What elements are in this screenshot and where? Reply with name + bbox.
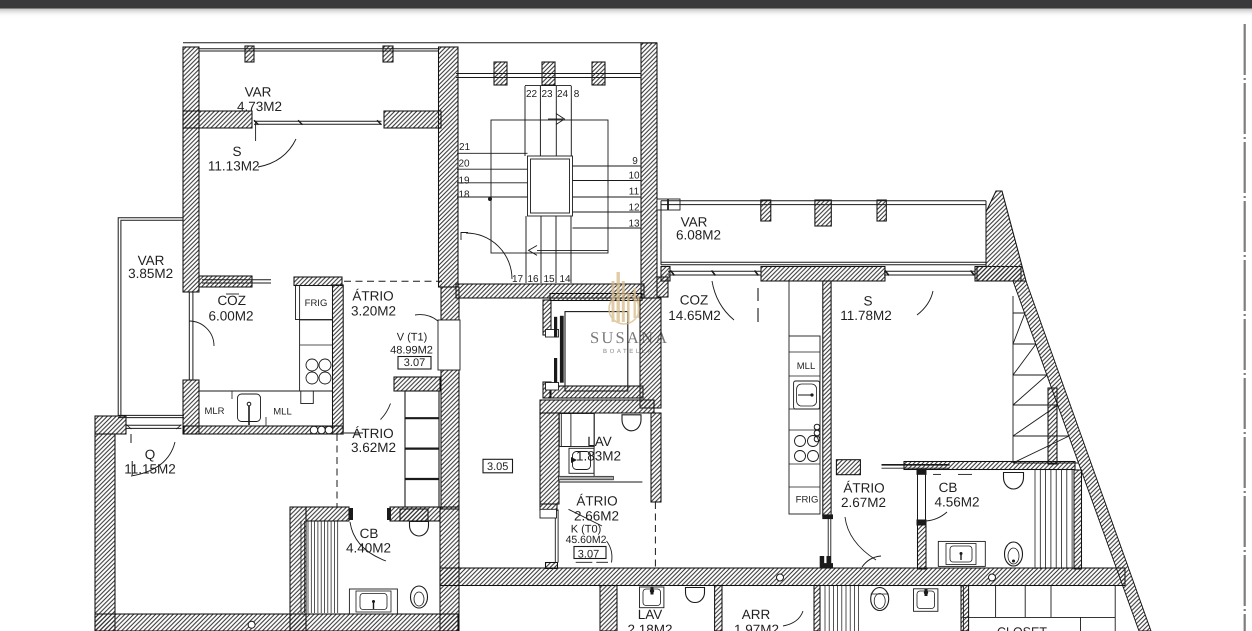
svg-text:ARR: ARR xyxy=(742,607,771,622)
svg-text:ÁTRIO: ÁTRIO xyxy=(352,289,393,304)
svg-text:MLR: MLR xyxy=(204,406,224,417)
svg-text:13: 13 xyxy=(628,219,640,230)
svg-text:18: 18 xyxy=(458,190,470,201)
svg-text:VAR: VAR xyxy=(245,85,272,100)
svg-text:3.07: 3.07 xyxy=(404,357,425,369)
svg-text:2.18M2: 2.18M2 xyxy=(627,622,672,631)
svg-text:4.56M2: 4.56M2 xyxy=(934,495,979,510)
svg-text:11.15M2: 11.15M2 xyxy=(124,462,176,477)
svg-text:MLL: MLL xyxy=(273,407,291,418)
svg-text:LAV: LAV xyxy=(587,434,612,449)
svg-text:12: 12 xyxy=(628,203,640,214)
svg-text:11.13M2: 11.13M2 xyxy=(208,159,260,174)
svg-text:CB: CB xyxy=(360,526,379,541)
svg-text:11: 11 xyxy=(629,187,640,198)
svg-text:Q: Q xyxy=(145,447,156,462)
svg-text:MLL: MLL xyxy=(797,361,815,372)
svg-text:16: 16 xyxy=(527,274,539,285)
svg-text:10: 10 xyxy=(628,171,640,182)
svg-text:COZ: COZ xyxy=(680,293,709,308)
svg-text:6.08M2: 6.08M2 xyxy=(676,228,721,243)
svg-text:4.73M2: 4.73M2 xyxy=(237,99,282,114)
svg-text:45.60M2: 45.60M2 xyxy=(566,534,607,546)
svg-text:V (T1): V (T1) xyxy=(397,332,428,344)
svg-text:8: 8 xyxy=(574,89,580,100)
svg-text:19: 19 xyxy=(458,176,470,187)
svg-text:11.78M2: 11.78M2 xyxy=(840,308,892,323)
svg-text:SUSANA: SUSANA xyxy=(590,328,669,347)
svg-text:21: 21 xyxy=(459,142,471,153)
svg-text:20: 20 xyxy=(458,159,470,170)
svg-text:3.05: 3.05 xyxy=(487,461,508,473)
svg-text:2.67M2: 2.67M2 xyxy=(841,495,886,510)
svg-text:14: 14 xyxy=(559,274,571,285)
svg-text:4.40M2: 4.40M2 xyxy=(346,541,391,556)
svg-text:2.66M2: 2.66M2 xyxy=(574,509,619,524)
svg-text:ÁTRIO: ÁTRIO xyxy=(843,481,884,496)
svg-text:15: 15 xyxy=(543,274,555,285)
svg-text:S: S xyxy=(863,294,872,309)
svg-text:22: 22 xyxy=(526,89,538,100)
svg-text:23: 23 xyxy=(541,89,553,100)
svg-text:9: 9 xyxy=(632,156,638,167)
svg-text:LAV: LAV xyxy=(638,607,663,622)
svg-text:1.83M2: 1.83M2 xyxy=(576,449,621,464)
svg-text:CLOSET: CLOSET xyxy=(997,625,1047,631)
svg-text:FRIG: FRIG xyxy=(305,298,328,309)
svg-text:S: S xyxy=(232,144,241,159)
svg-text:COZ: COZ xyxy=(217,293,246,308)
svg-text:17: 17 xyxy=(512,274,524,285)
svg-text:1.97M2: 1.97M2 xyxy=(734,622,779,631)
svg-text:24: 24 xyxy=(557,89,569,100)
svg-text:6.00M2: 6.00M2 xyxy=(208,309,253,324)
svg-text:BOATELLA: BOATELLA xyxy=(603,348,654,355)
svg-text:CB: CB xyxy=(939,480,958,495)
svg-text:3.62M2: 3.62M2 xyxy=(351,440,396,455)
svg-text:ÁTRIO: ÁTRIO xyxy=(352,426,393,441)
svg-text:48.99M2: 48.99M2 xyxy=(390,345,433,357)
svg-text:3.85M2: 3.85M2 xyxy=(128,266,173,281)
svg-text:ÁTRIO: ÁTRIO xyxy=(576,494,617,509)
svg-text:FRIG: FRIG xyxy=(796,495,819,506)
svg-text:3.20M2: 3.20M2 xyxy=(351,304,396,319)
svg-text:14.65M2: 14.65M2 xyxy=(668,308,721,323)
